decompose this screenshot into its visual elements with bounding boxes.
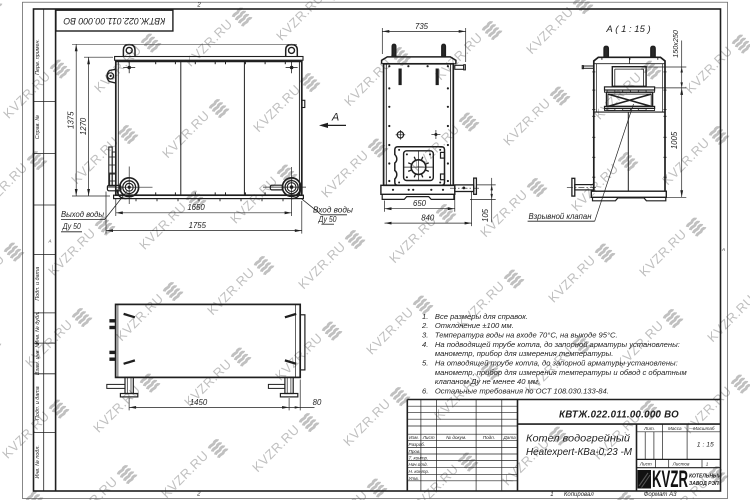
svg-text:клапаном Ду не менее 40 мм.: клапаном Ду не менее 40 мм. [435,377,540,386]
svg-text:Взрывной клапан: Взрывной клапан [529,212,593,221]
svg-text:KVZR.RU: KVZR.RU [0,251,8,304]
svg-text:6.: 6. [422,386,428,395]
svg-text:Масса: Масса [668,426,682,431]
svg-text:Разраб.: Разраб. [409,442,426,447]
svg-text:2.: 2. [421,321,428,330]
svg-text:KVZR.RU: KVZR.RU [523,4,576,57]
svg-text:735: 735 [415,22,429,31]
svg-text:KVZR.RU: KVZR.RU [318,147,371,200]
svg-text:А: А [331,112,339,124]
svg-text:KVZR.RU: KVZR.RU [272,330,325,383]
svg-text:KVZR.RU: KVZR.RU [295,239,348,292]
svg-text:1270: 1270 [79,117,88,135]
svg-text:Подп.: Подп. [483,435,495,440]
svg-text:Все размеры для справок.: Все размеры для справок. [435,312,528,321]
svg-text:манометр, прибор для измерения: манометр, прибор для измерения температу… [435,368,688,377]
svg-text:Изм.: Изм. [409,435,419,440]
svg-text:КВТЖ.022.011.00.000 ВО: КВТЖ.022.011.00.000 ВО [559,409,679,420]
svg-text:KVZR.RU: KVZR.RU [250,82,303,135]
svg-text:150х250: 150х250 [671,30,680,58]
svg-text:Утв.: Утв. [409,476,419,481]
svg-text:KVZR.RU: KVZR.RU [90,382,143,435]
svg-text:№ докум.: № докум. [446,435,466,440]
svg-text:KVZR.RU: KVZR.RU [45,225,98,278]
svg-text:650: 650 [413,199,427,208]
svg-text:KVZR.RU: KVZR.RU [363,304,416,357]
svg-text:Формат А3: Формат А3 [644,492,677,498]
svg-text:Выход воды: Выход воды [61,210,104,219]
svg-text:1 : 15: 1 : 15 [697,441,714,448]
svg-text:Отклонение ±100 мм.: Отклонение ±100 мм. [435,321,514,330]
svg-text:Копировал: Копировал [564,492,594,498]
svg-text:KVZR.RU: KVZR.RU [113,291,166,344]
svg-text:Лист: Лист [639,461,652,466]
svg-text:Инв. № дубл.: Инв. № дубл. [35,311,41,344]
svg-text:KVZR.RU: KVZR.RU [136,199,189,252]
svg-text:KVZR: KVZR [652,466,688,493]
svg-text:Дата: Дата [503,435,517,440]
svg-text:2: 2 [196,3,201,9]
svg-text:А: А [47,239,51,244]
svg-text:КОТЕЛЬНЫЙ: КОТЕЛЬНЫЙ [689,471,722,479]
svg-text:KVZR.RU: KVZR.RU [0,160,31,213]
svg-text:Нач.отд.: Нач.отд. [409,462,428,467]
svg-text:Ду 50: Ду 50 [62,222,81,231]
svg-text:KVZR.RU: KVZR.RU [409,121,462,174]
svg-text:3.: 3. [422,330,428,339]
svg-text:105: 105 [481,208,490,222]
svg-text:Масштаб: Масштаб [693,426,715,431]
svg-text:Н. контр.: Н. контр. [409,469,430,474]
svg-text:манометр, прибор для измерения: манометр, прибор для измерения температу… [435,349,613,358]
svg-text:KVZR.RU: KVZR.RU [273,0,326,44]
svg-text:KVZR.RU: KVZR.RU [591,69,644,122]
svg-text:Лист: Лист [422,435,435,440]
svg-text:2: 2 [196,491,201,497]
svg-text:KVZR.RU: KVZR.RU [340,396,393,449]
svg-text:А: А [721,247,725,252]
svg-text:KVZR.RU: KVZR.RU [636,226,689,279]
svg-text:KVZR.RU: KVZR.RU [158,448,211,500]
svg-text:KVZR.RU: KVZR.RU [204,265,257,318]
svg-text:KVZR.RU: KVZR.RU [91,42,144,95]
svg-text:KVZR.RU: KVZR.RU [500,95,553,148]
svg-text:Котел водогрейный: Котел водогрейный [526,432,630,444]
svg-text:1: 1 [706,461,709,466]
svg-text:1.: 1. [422,312,428,321]
svg-text:KVZR.RU: KVZR.RU [227,173,280,226]
svg-text:Пров.: Пров. [409,449,421,454]
svg-text:840: 840 [421,214,435,223]
svg-text:На отводящей трубе котла, до з: На отводящей трубе котла, до запорной ар… [435,358,678,367]
svg-text:KVZR.RU: KVZR.RU [249,422,302,475]
svg-text:Остальные требования по ОСТ 10: Остальные требования по ОСТ 108.030.133-… [435,386,609,395]
svg-text:Инв. № подл.: Инв. № подл. [35,445,41,478]
svg-text:Подп. и дата: Подп. и дата [35,386,41,420]
svg-text:KVZR.RU: KVZR.RU [67,474,120,500]
svg-text:Лит.: Лит. [643,426,655,431]
svg-text:А ( 1 : 15 ): А ( 1 : 15 ) [605,24,650,35]
svg-text:4.: 4. [422,340,428,349]
svg-text:1005: 1005 [670,131,679,149]
svg-text:Перв. примен.: Перв. примен. [35,39,41,75]
svg-text:1450: 1450 [190,398,208,407]
svg-text:KVZR.RU: KVZR.RU [159,108,212,161]
svg-text:ЗАВОД РЭП: ЗАВОД РЭП [689,481,719,487]
svg-text:KVZR.RU: KVZR.RU [317,487,370,500]
svg-text:Взам. инв. №: Взам. инв. № [35,342,41,376]
svg-text:Справ. №: Справ. № [35,115,41,140]
svg-text:KVZR.RU: KVZR.RU [659,135,712,188]
svg-text:80: 80 [313,398,322,407]
svg-text:KVZR.RU: KVZR.RU [545,252,598,305]
svg-text:Т. контр.: Т. контр. [409,456,429,461]
svg-text:1375: 1375 [66,111,75,129]
svg-text:KVZR.RU: KVZR.RU [0,68,53,121]
svg-text:КВТЖ.022.011.00.000 ВО: КВТЖ.022.011.00.000 ВО [63,16,165,26]
svg-text:1650: 1650 [187,203,205,212]
svg-text:На подводящей трубе котла, до: На подводящей трубе котла, до запорной а… [435,340,680,349]
svg-text:Температура воды на входе 70°С: Температура воды на входе 70°С, на выход… [435,330,618,339]
svg-text:KVZR.RU: KVZR.RU [0,408,53,461]
svg-text:5.: 5. [422,358,428,367]
svg-text:KVZR.RU: KVZR.RU [704,292,750,345]
svg-text:1: 1 [550,492,553,498]
svg-text:Heatexpert-КВа-0,23 -М: Heatexpert-КВа-0,23 -М [526,446,632,458]
svg-text:Ду 50: Ду 50 [318,215,337,224]
svg-text:Подп. и дата: Подп. и дата [35,267,41,301]
svg-text:1755: 1755 [189,221,207,230]
